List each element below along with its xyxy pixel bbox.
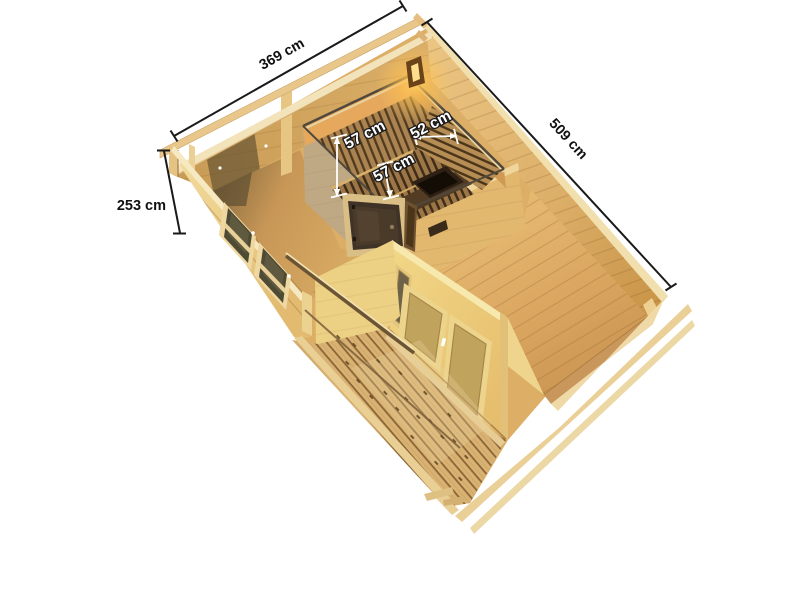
svg-text:253 cm: 253 cm <box>117 198 166 214</box>
